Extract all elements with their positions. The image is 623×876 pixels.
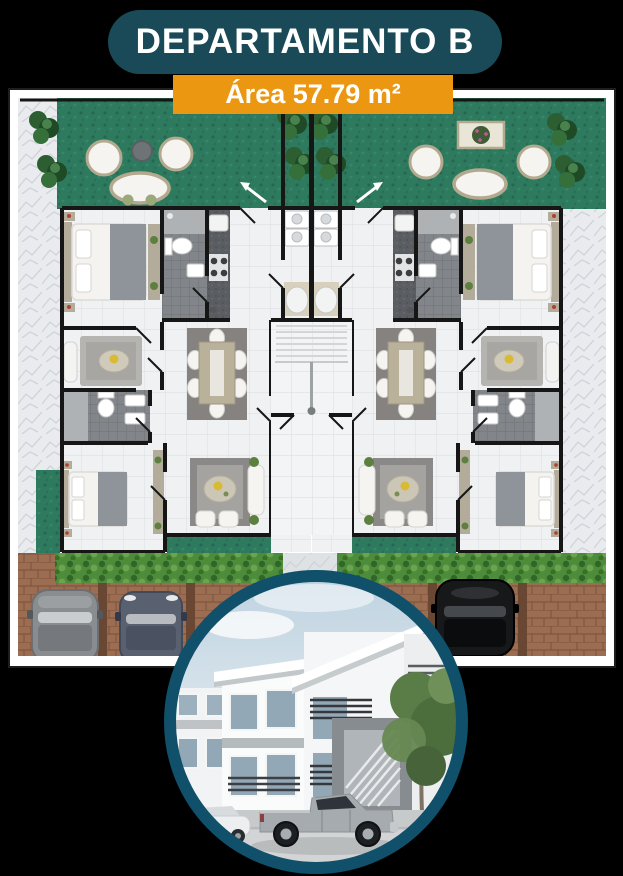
flyer: DEPARTAMENTO B Área 57.79 m² — [0, 0, 623, 876]
toilet — [172, 238, 192, 254]
stall-divider — [98, 583, 107, 656]
sofa — [248, 465, 264, 515]
area-label: Área 57.79 m² — [225, 79, 401, 110]
marble-walkway-right — [561, 209, 606, 553]
bedroom-1 — [63, 212, 160, 312]
patio-chair — [410, 146, 442, 178]
kitchen — [207, 210, 230, 320]
stall-divider — [518, 583, 527, 656]
bathroom-1 — [162, 208, 207, 320]
plant — [249, 457, 259, 467]
shower-head — [167, 213, 173, 219]
dining-room — [187, 328, 247, 420]
garden-table — [132, 141, 152, 161]
staircase-hall — [271, 320, 352, 535]
washer — [292, 214, 302, 224]
bathroom-2 — [62, 390, 150, 443]
armchair — [196, 511, 215, 527]
patio-bench — [454, 170, 506, 198]
stool — [146, 195, 157, 206]
garden-left — [29, 98, 315, 209]
floor-drain — [210, 307, 216, 313]
building-photo-circle — [164, 570, 468, 874]
papasan-chair — [160, 138, 192, 170]
papasan-chair — [87, 141, 121, 175]
plant — [249, 515, 259, 525]
sink — [187, 264, 204, 277]
shrub — [426, 818, 468, 846]
garden-right — [308, 98, 606, 209]
title-badge: DEPARTAMENTO B — [108, 10, 502, 74]
armchair — [219, 511, 238, 527]
study-nook — [64, 336, 142, 386]
loveseat — [64, 342, 77, 382]
building-photo — [164, 570, 468, 874]
kitchen-sink — [209, 215, 228, 231]
sink — [125, 413, 145, 424]
sink — [125, 395, 145, 406]
water-heater — [286, 287, 308, 313]
living-room — [190, 457, 264, 527]
area-banner: Área 57.79 m² — [173, 75, 453, 114]
dryer — [292, 232, 302, 242]
toilet — [98, 399, 114, 417]
car-gray — [27, 590, 103, 656]
stool — [123, 195, 134, 206]
patio-chair — [518, 146, 550, 178]
page-title: DEPARTAMENTO B — [136, 22, 475, 62]
curved-sofa — [111, 173, 169, 203]
